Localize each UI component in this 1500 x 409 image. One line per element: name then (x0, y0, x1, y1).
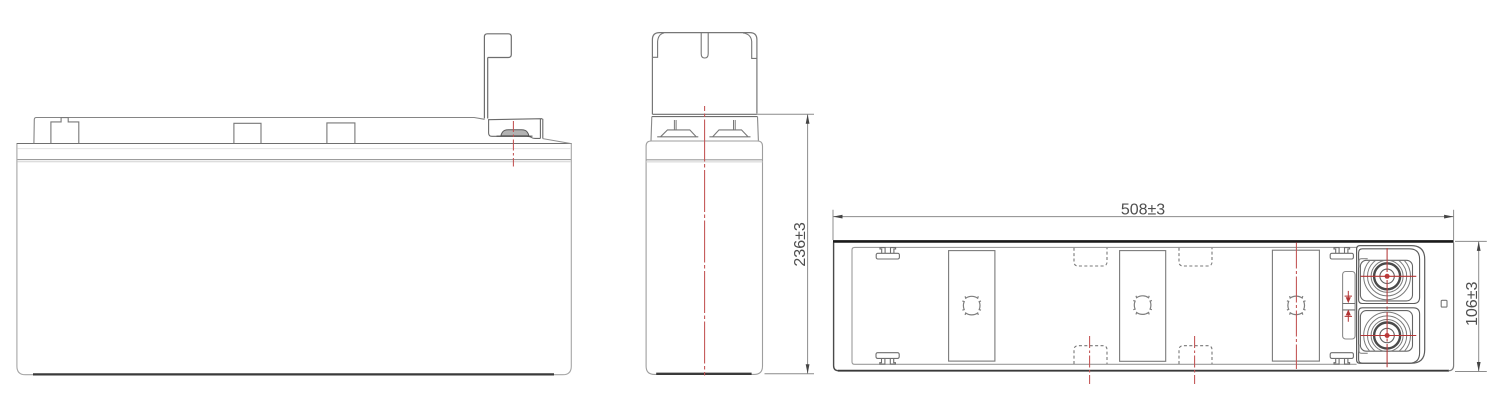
svg-text:106±3: 106±3 (1464, 282, 1481, 326)
svg-text:508±3: 508±3 (1121, 202, 1165, 219)
svg-text:236±3: 236±3 (792, 222, 809, 266)
